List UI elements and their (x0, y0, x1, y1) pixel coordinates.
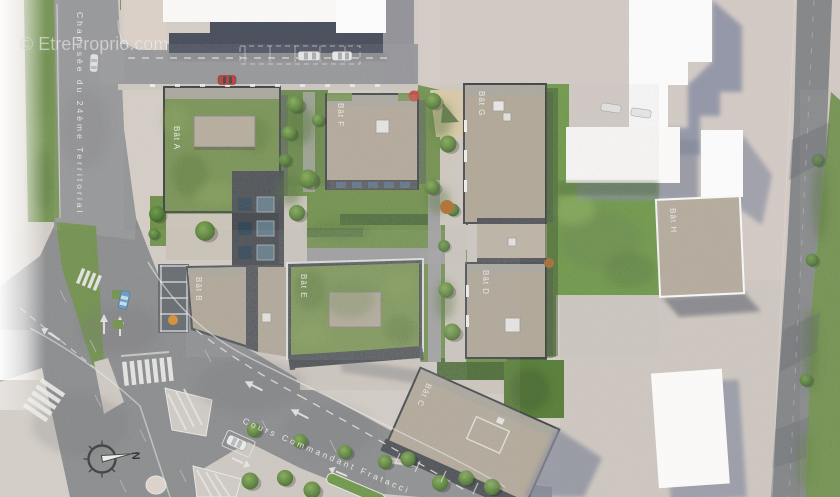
svg-text:© EtreProprio.com: © EtreProprio.com (20, 34, 168, 54)
